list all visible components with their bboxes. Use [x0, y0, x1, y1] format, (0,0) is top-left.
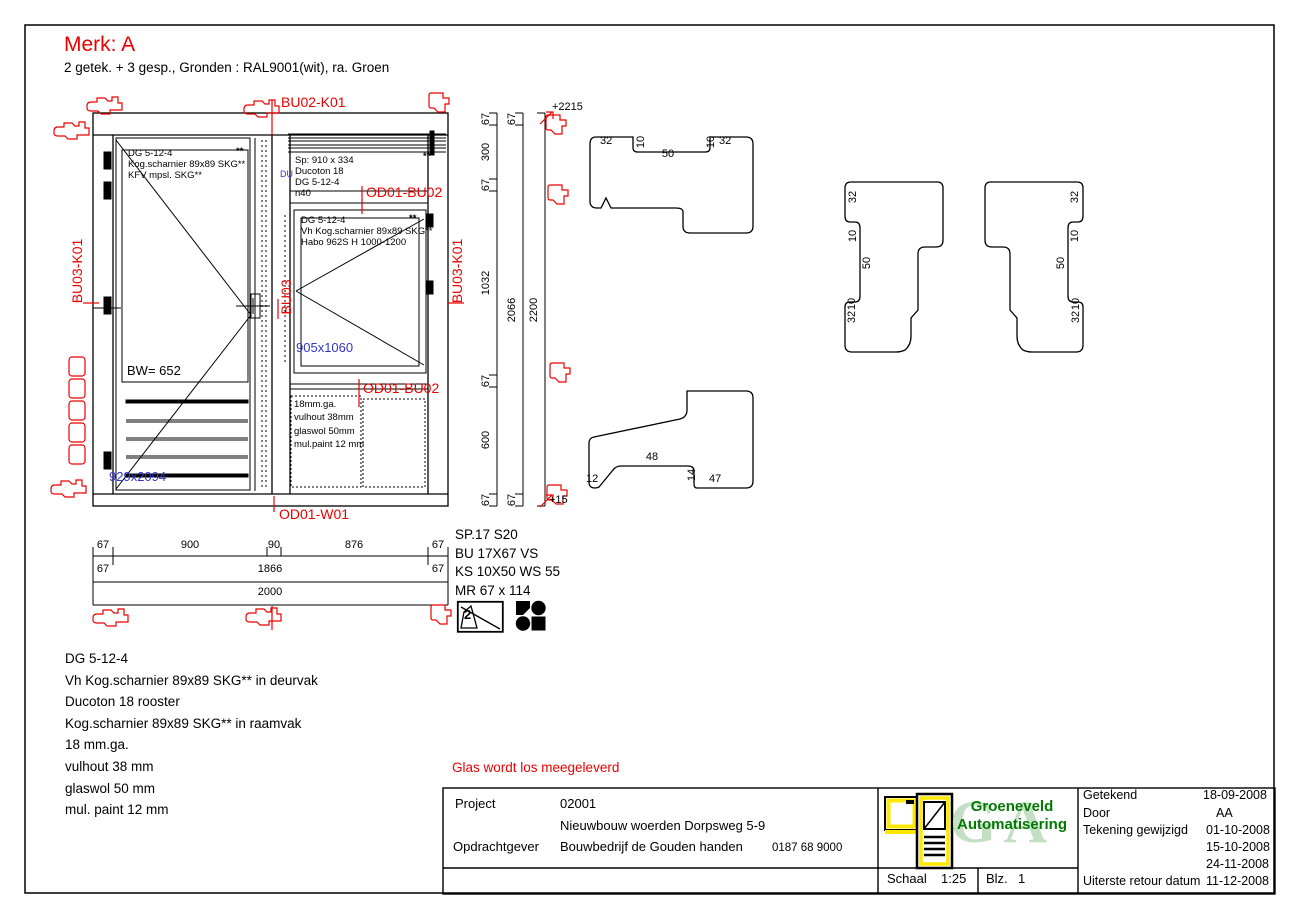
door-value: AA [1216, 807, 1233, 821]
window-note-stars: ** [409, 214, 416, 224]
dim-bottom: 90 [268, 539, 280, 551]
profile-dim: 10 [847, 230, 859, 242]
profile-dim: 32 [1070, 311, 1082, 323]
materials-line: vulhout 38 mm [65, 756, 318, 778]
gewijzigd-date: 24-11-2008 [1206, 858, 1269, 872]
getekend-label: Getekend [1083, 789, 1137, 803]
dim-bottom: 876 [345, 539, 363, 551]
profile-dim: 32 [1069, 191, 1081, 203]
glass-note: Glas wordt los meegeleverd [452, 761, 619, 776]
profile-dim: 10 [705, 136, 717, 148]
dim-right-total: 2200 [528, 298, 540, 322]
dim-bottom: 1866 [258, 563, 282, 575]
getekend-value: 18-09-2008 [1203, 789, 1267, 803]
project-name: Nieuwbouw woerden Dorpsweg 5-9 [560, 819, 765, 833]
profile-dim: 50 [662, 148, 674, 160]
materials-line: mul. paint 12 mm [65, 799, 318, 821]
profile-dim: 12 [586, 473, 598, 485]
label-bu03-k01-right: BU03-K01 [449, 239, 465, 304]
materials-list: DG 5-12-4 Vh Kog.scharnier 89x89 SKG** i… [65, 648, 318, 821]
profile-dim: 10 [635, 136, 647, 148]
retour-value: 11-12-2008 [1206, 875, 1269, 889]
dim-bottom: 67 [97, 563, 109, 575]
dim-bottom-total: 2000 [258, 586, 282, 598]
profile-dim: 32 [846, 311, 858, 323]
level-bottom: +15 [549, 494, 568, 506]
label-bu03-center: BU03 [278, 279, 294, 314]
profile-sections [589, 137, 1083, 488]
bottom-sill-profile [589, 391, 753, 488]
profile-dim: 10 [1069, 230, 1081, 242]
dim-right: 67 [506, 113, 518, 125]
profile-dim: 47 [709, 473, 721, 485]
certification-icon [516, 601, 546, 631]
gewijzigd-label: Tekening gewijzigd [1083, 824, 1188, 838]
materials-line: DG 5-12-4 [65, 648, 318, 670]
drawing-sheet: Merk: A 2 getek. + 3 gesp., Gronden : RA… [0, 0, 1297, 919]
company-name-line1: Groeneveld [971, 799, 1054, 816]
profile-dim: 10 [846, 298, 858, 310]
dim-right: 2066 [506, 298, 518, 322]
schaal-label: Schaal [887, 872, 927, 886]
page-subtitle: 2 getek. + 3 gesp., Gronden : RAL9001(wi… [64, 61, 389, 76]
dim-right: 67 [480, 494, 492, 506]
materials-line: Ducoton 18 rooster [65, 691, 318, 713]
label-od01-bu02-lower: OD01-BU02 [363, 381, 439, 396]
client-phone: 0187 68 9000 [772, 842, 842, 855]
dim-right: 67 [480, 375, 492, 387]
right-stile-profile [985, 182, 1083, 352]
client-name: Bouwbedrijf de Gouden handen [560, 840, 743, 854]
window-size: 905x1060 [296, 341, 353, 355]
dim-right: 600 [480, 431, 492, 449]
profile-dim: 32 [600, 135, 612, 147]
dim-right: 67 [480, 179, 492, 191]
label-bu02-k01: BU02-K01 [281, 95, 346, 110]
dim-bottom: 67 [97, 539, 109, 551]
dim-bottom: 67 [432, 563, 444, 575]
profile-dim: 50 [861, 257, 873, 269]
left-stile-profile [845, 182, 943, 352]
dim-right: 67 [480, 113, 492, 125]
profile-dim: 10 [1070, 298, 1082, 310]
door-size: 929x2094 [109, 470, 166, 484]
door-note: DG 5-12-4 Kog.scharnier 89x89 SKG** KFV … [128, 148, 245, 181]
profile-dim: 32 [847, 191, 859, 203]
door-note-stars: ** [236, 147, 243, 157]
glass-icon-number: 2 [464, 608, 471, 622]
project-label: Project [455, 797, 495, 811]
spec-block: SP.17 S20 BU 17X67 VS KS 10X50 WS 55 MR … [455, 526, 560, 600]
client-label: Opdrachtgever [453, 840, 539, 854]
page-title: Merk: A [64, 33, 135, 56]
dim-right: 67 [506, 494, 518, 506]
materials-line: 18 mm.ga. [65, 734, 318, 756]
retour-label: Uiterste retour datum [1083, 875, 1200, 889]
schaal-value: 1:25 [941, 872, 966, 886]
materials-line: Vh Kog.scharnier 89x89 SKG** in deurvak [65, 670, 318, 692]
door-leaf [93, 138, 270, 491]
blue-marker: DU [280, 170, 293, 180]
company-name-line2: Automatisering [957, 817, 1067, 834]
rooster-note: Sp: 910 x 334 Ducoton 18 DG 5-12-4 n40 [295, 155, 354, 199]
door-label: Door [1083, 807, 1110, 821]
rooster-note-stars: ** [423, 152, 430, 162]
company-logo-icon [885, 794, 952, 868]
profile-dim: 50 [1055, 257, 1067, 269]
blz-label: Blz. [986, 872, 1008, 886]
bw-value: BW= 652 [127, 364, 181, 378]
label-od01-w01: OD01-W01 [279, 507, 349, 522]
panel-note: 18mm.ga. vulhout 38mm glaswol 50mm mul.p… [294, 398, 364, 452]
gewijzigd-date: 01-10-2008 [1206, 824, 1270, 838]
materials-line: glaswol 50 mm [65, 778, 318, 800]
gewijzigd-date: 15-10-2008 [1206, 841, 1270, 855]
project-number: 02001 [560, 797, 596, 811]
dim-right: 300 [480, 143, 492, 161]
dim-bottom: 900 [181, 539, 199, 551]
level-top: +2215 [552, 101, 583, 113]
profile-dim: 48 [646, 451, 658, 463]
dim-bottom: 67 [432, 539, 444, 551]
materials-line: Kog.scharnier 89x89 SKG** in raamvak [65, 713, 318, 735]
dim-right: 1032 [480, 271, 492, 295]
label-bu03-k01-left: BU03-K01 [69, 239, 85, 304]
profile-dim: 32 [719, 135, 731, 147]
label-od01-bu02-upper: OD01-BU02 [366, 185, 442, 200]
blz-value: 1 [1018, 872, 1025, 886]
profile-dim: 14 [686, 469, 698, 481]
